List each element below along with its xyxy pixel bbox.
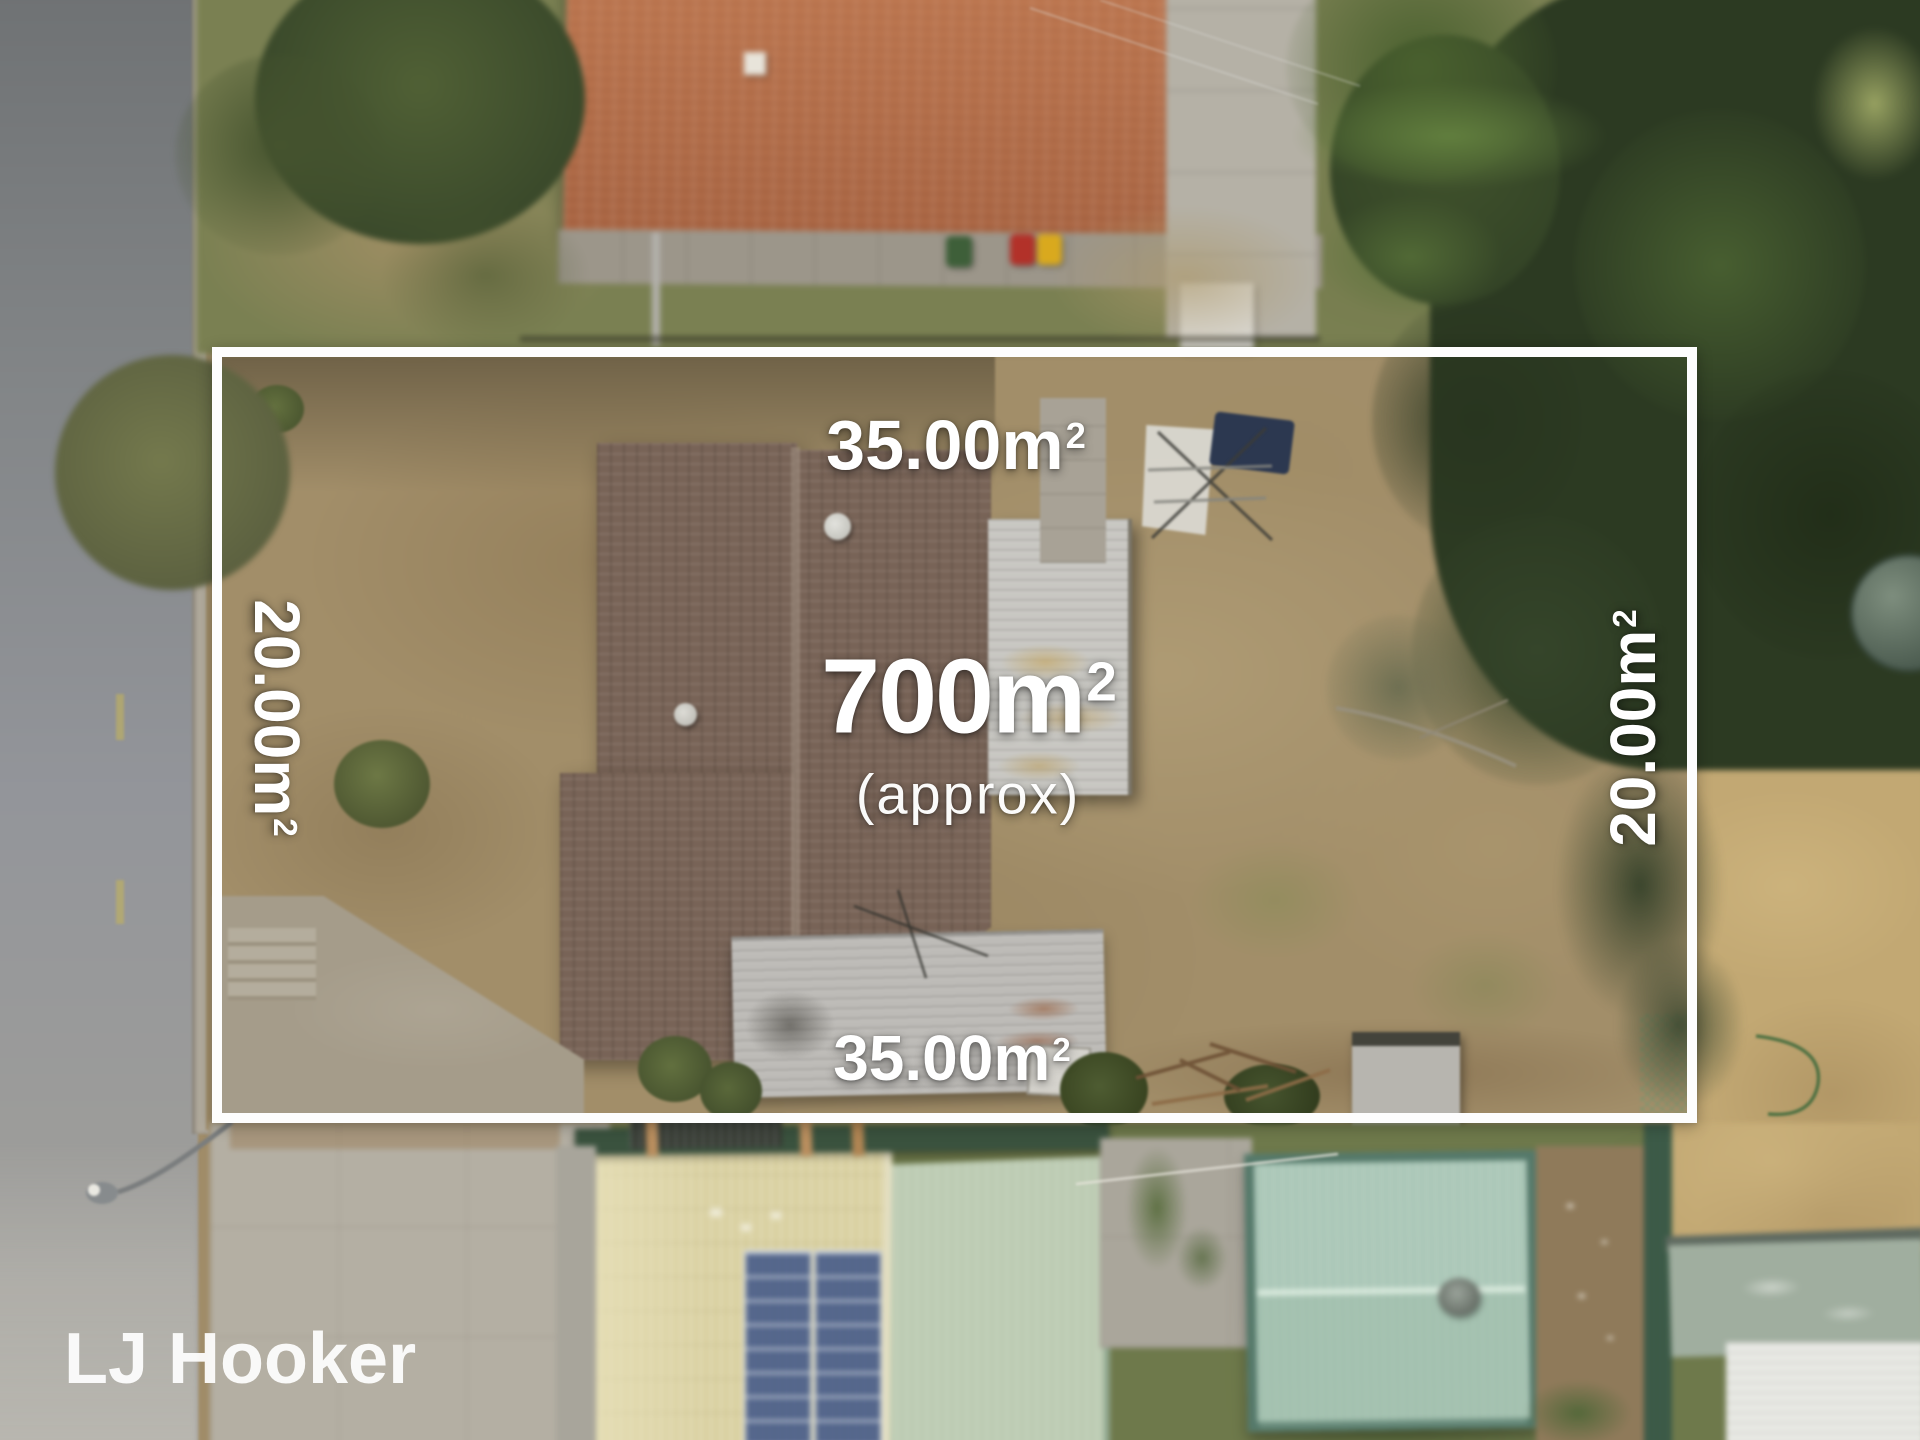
dimension-right: 20.00m2 (1596, 609, 1670, 847)
dimension-value: 35.00m (826, 406, 1063, 484)
dimension-value: 20.00m (1597, 630, 1669, 847)
dimension-value: 20.00m (241, 599, 313, 816)
dimension-left: 20.00m2 (240, 599, 314, 837)
powerline-top-2 (1100, 0, 1360, 86)
dimension-sup: 2 (266, 818, 303, 837)
dimension-bottom: 35.00m2 (833, 1021, 1071, 1095)
agency-watermark: LJ Hooker (64, 1318, 416, 1400)
total-area-sup: 2 (1086, 651, 1115, 713)
dimension-sup: 2 (1052, 1032, 1071, 1069)
aerial-property-photo: 35.00m2 35.00m2 20.00m2 20.00m2 700m2 (a… (0, 0, 1920, 1440)
dimension-value: 35.00m (833, 1022, 1050, 1094)
dimension-sup: 2 (1607, 609, 1644, 628)
area-qualifier: (approx) (856, 762, 1081, 827)
powerline-top-1 (1030, 8, 1318, 104)
streetlight-arm (118, 1122, 232, 1192)
total-area-label: 700m2 (821, 637, 1115, 758)
total-area-value: 700m (821, 638, 1084, 756)
dimension-sup: 2 (1066, 415, 1086, 456)
powerline-bottom (1076, 1154, 1338, 1184)
garden-hose (1756, 1036, 1818, 1114)
dimension-top: 35.00m2 (826, 405, 1086, 485)
streetlight-lamp (88, 1184, 100, 1196)
